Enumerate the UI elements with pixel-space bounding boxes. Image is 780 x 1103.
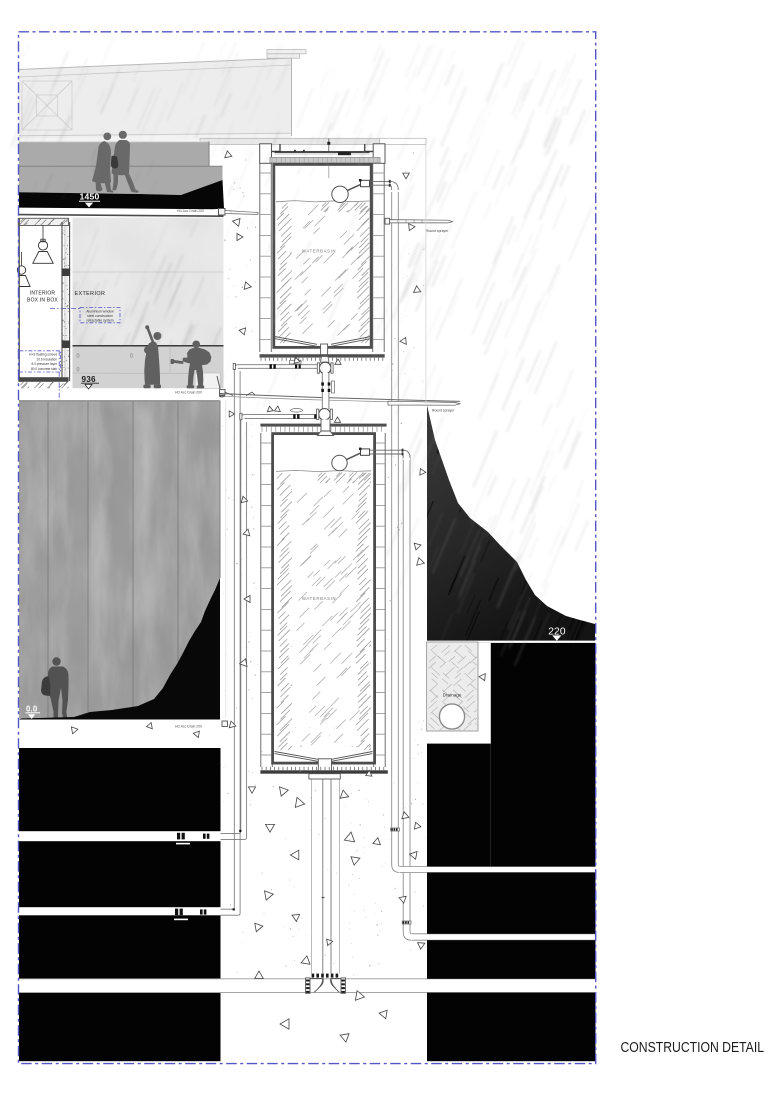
svg-text:Drainage: Drainage bbox=[443, 692, 462, 697]
svg-text:BOX IN BOX: BOX IN BOX bbox=[27, 298, 58, 304]
svg-text:Round sprayer: Round sprayer bbox=[432, 409, 455, 413]
svg-text:Aluminium window: Aluminium window bbox=[86, 309, 114, 313]
svg-text:0.0: 0.0 bbox=[26, 704, 38, 713]
svg-text:CONSTRUCTION DETAIL: CONSTRUCTION DETAIL bbox=[621, 1040, 765, 1056]
svg-text:1450: 1450 bbox=[80, 192, 100, 202]
svg-text:HD Acc Drain 200: HD Acc Drain 200 bbox=[177, 209, 204, 213]
svg-text:10.0 insulation: 10.0 insulation bbox=[36, 357, 57, 361]
svg-text:936: 936 bbox=[82, 375, 97, 384]
svg-text:80.0 concrete slab: 80.0 concrete slab bbox=[31, 367, 57, 371]
svg-text:INTERIOR: INTERIOR bbox=[30, 290, 56, 296]
svg-text:HD Acc Drain 200: HD Acc Drain 200 bbox=[175, 391, 202, 395]
svg-text:8.0 pressure layer: 8.0 pressure layer bbox=[31, 362, 57, 366]
svg-text:HD Acc Drain 200: HD Acc Drain 200 bbox=[175, 725, 202, 729]
svg-text:WATERBASIN: WATERBASIN bbox=[302, 596, 336, 601]
svg-text:H+S floating screed: H+S floating screed bbox=[29, 353, 57, 357]
